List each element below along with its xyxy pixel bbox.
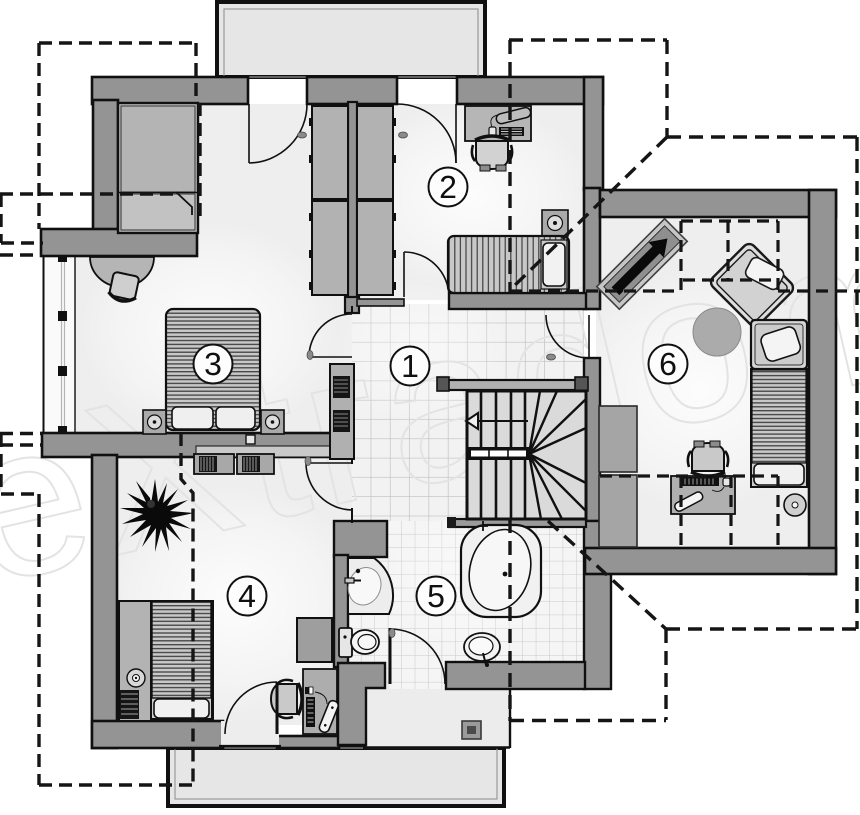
svg-text:3: 3 bbox=[204, 346, 222, 382]
svg-text:4: 4 bbox=[238, 578, 256, 614]
svg-text:2: 2 bbox=[439, 169, 457, 205]
svg-text:1: 1 bbox=[401, 348, 419, 384]
svg-text:5: 5 bbox=[427, 578, 445, 614]
svg-text:6: 6 bbox=[659, 346, 677, 382]
